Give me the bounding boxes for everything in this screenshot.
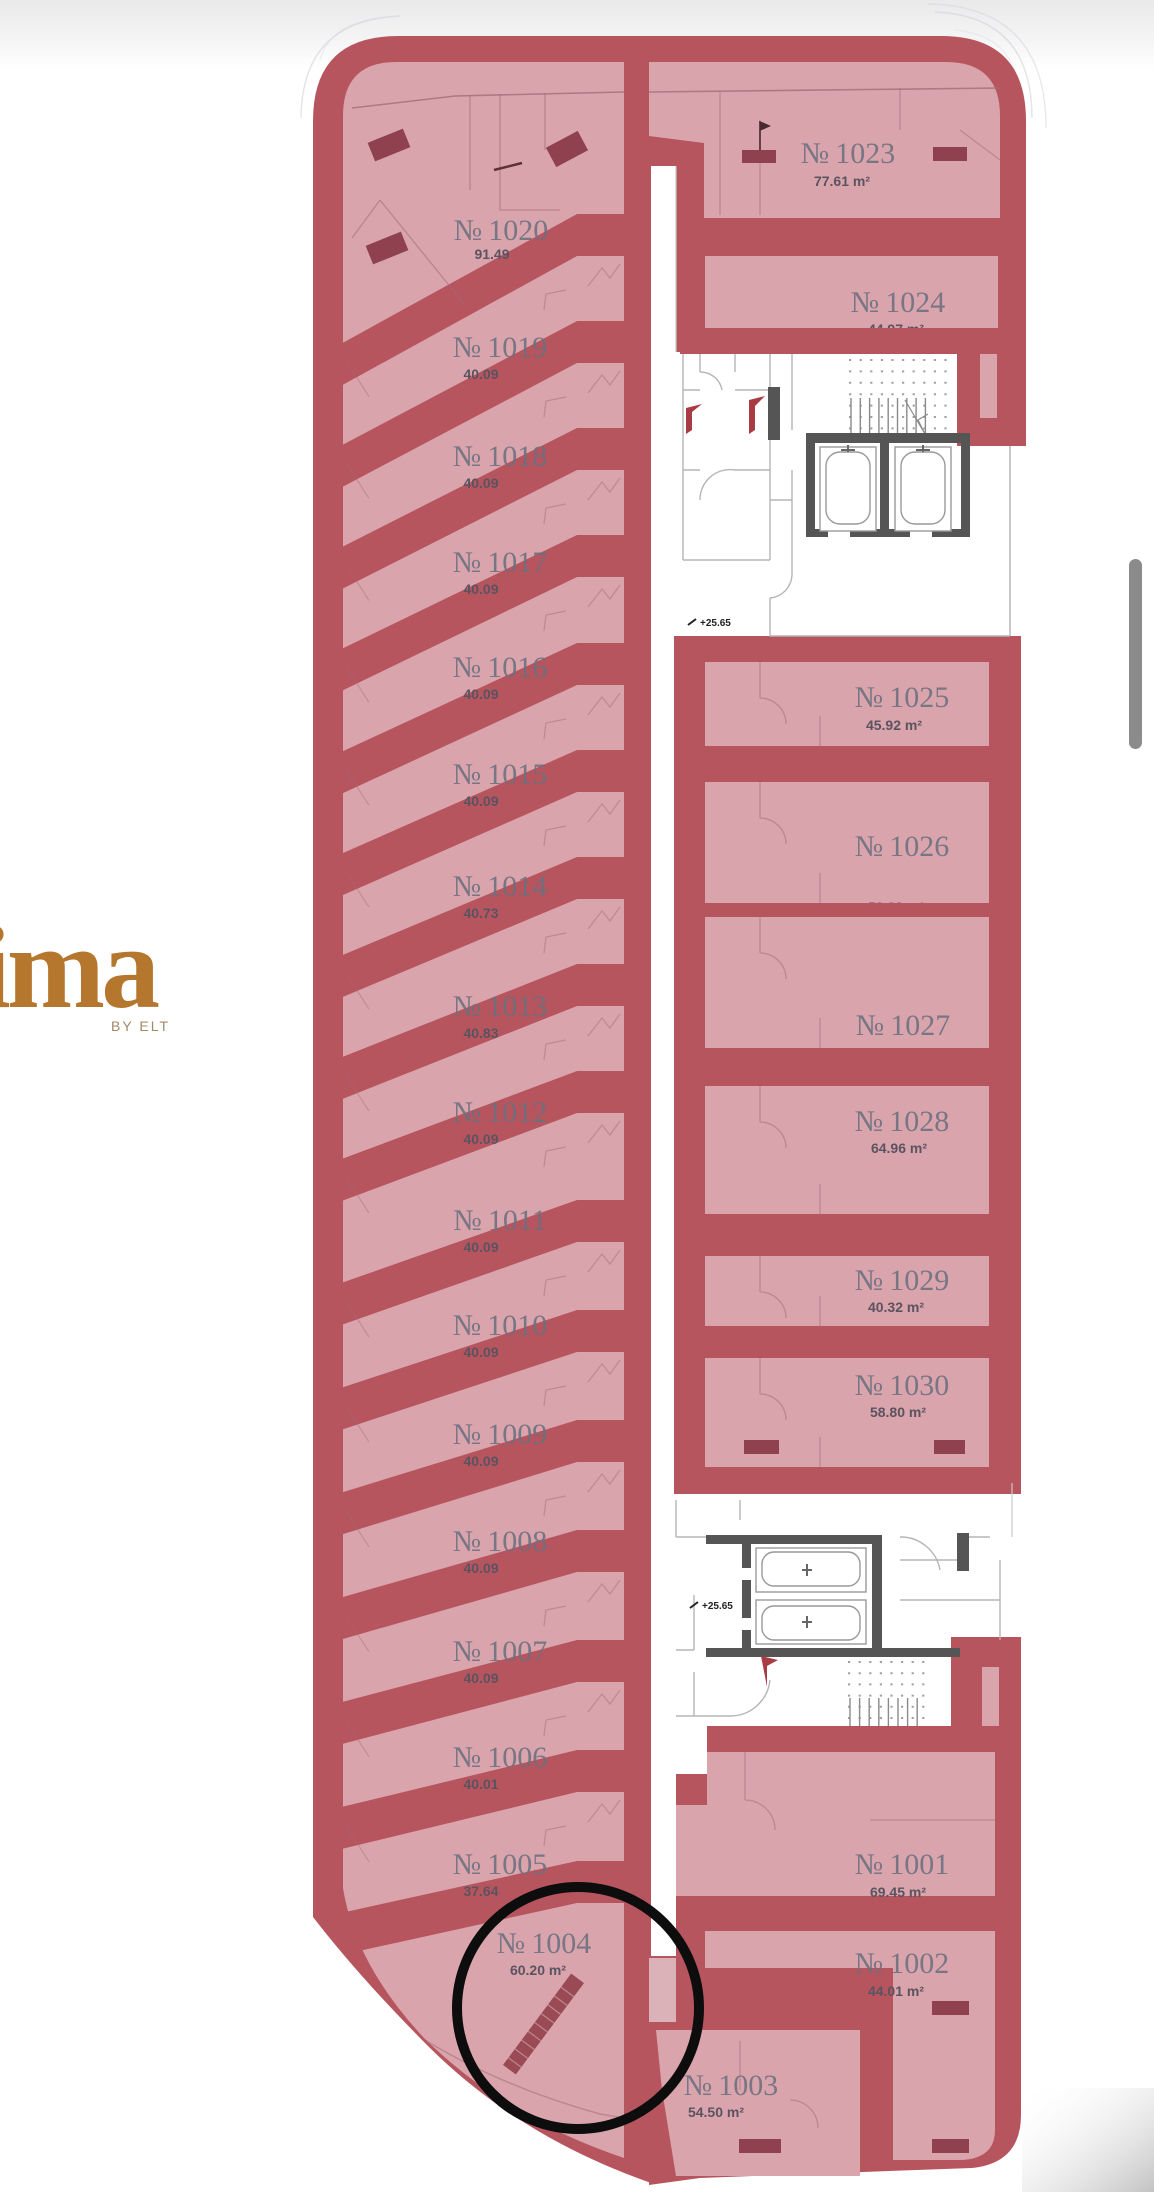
svg-text:№ 1020: № 1020 [454, 214, 549, 247]
svg-text:40.32 m²: 40.32 m² [868, 1299, 924, 1315]
svg-text:40.09: 40.09 [463, 1670, 498, 1686]
svg-text:BY ELT: BY ELT [111, 1018, 170, 1034]
svg-text:40.83: 40.83 [463, 1025, 498, 1041]
svg-text:40.09: 40.09 [463, 366, 498, 382]
svg-text:№ 1011: № 1011 [453, 1204, 547, 1237]
svg-text:№ 1028: № 1028 [855, 1105, 950, 1138]
svg-text:40.09: 40.09 [463, 686, 498, 702]
svg-text:№ 1001: № 1001 [855, 1848, 950, 1881]
svg-text:№ 1008: № 1008 [453, 1525, 548, 1558]
svg-text:№ 1005: № 1005 [453, 1848, 548, 1881]
svg-text:45.92 m²: 45.92 m² [866, 717, 922, 733]
svg-text:54.50 m²: 54.50 m² [688, 2104, 744, 2120]
svg-text:№ 1002: № 1002 [855, 1947, 950, 1980]
svg-text:60.20 m²: 60.20 m² [510, 1962, 566, 1978]
svg-text:№ 1019: № 1019 [453, 331, 548, 364]
svg-text:№ 1009: № 1009 [453, 1418, 548, 1451]
svg-text:№ 1014: № 1014 [453, 870, 548, 903]
svg-text:№ 1015: № 1015 [453, 758, 548, 791]
svg-text:№ 1018: № 1018 [453, 440, 548, 473]
svg-text:58.80 m²: 58.80 m² [870, 1404, 926, 1420]
svg-text:91.49: 91.49 [474, 246, 509, 262]
svg-text:№ 1013: № 1013 [453, 990, 548, 1023]
svg-text:40.09: 40.09 [463, 1131, 498, 1147]
svg-text:40.09: 40.09 [463, 1344, 498, 1360]
svg-text:+25.65: +25.65 [702, 1601, 733, 1612]
svg-text:44.01 m²: 44.01 m² [868, 1983, 924, 1999]
svg-text:№ 1010: № 1010 [453, 1309, 548, 1342]
svg-text:№ 1024: № 1024 [851, 286, 946, 319]
svg-text:40.09: 40.09 [463, 1560, 498, 1576]
svg-text:40.09: 40.09 [463, 1239, 498, 1255]
svg-text:№ 1027: № 1027 [856, 1009, 951, 1042]
svg-text:№ 1012: № 1012 [453, 1096, 548, 1129]
svg-text:40.09: 40.09 [463, 581, 498, 597]
svg-text:40.73: 40.73 [463, 905, 498, 921]
svg-text:№ 1004: № 1004 [497, 1927, 592, 1960]
svg-text:37.64: 37.64 [463, 1883, 498, 1899]
svg-text:40.01: 40.01 [463, 1776, 498, 1792]
svg-text:№ 1007: № 1007 [453, 1635, 548, 1668]
svg-text:40.09: 40.09 [463, 1453, 498, 1469]
svg-text:№ 1006: № 1006 [453, 1741, 548, 1774]
svg-text:69.45 m²: 69.45 m² [870, 1884, 926, 1900]
svg-text:№ 1017: № 1017 [453, 546, 548, 579]
svg-text:№ 1026: № 1026 [855, 830, 950, 863]
svg-text:40.09: 40.09 [463, 793, 498, 809]
svg-text:№ 1023: № 1023 [801, 137, 896, 170]
svg-text:64.96 m²: 64.96 m² [871, 1140, 927, 1156]
svg-text:№ 1003: № 1003 [684, 2069, 779, 2102]
svg-text:+25.65: +25.65 [700, 618, 731, 629]
svg-text:№ 1025: № 1025 [855, 681, 950, 714]
svg-text:ima: ima [0, 902, 159, 1033]
svg-text:№ 1030: № 1030 [855, 1369, 950, 1402]
svg-text:№ 1016: № 1016 [453, 651, 548, 684]
svg-text:40.09: 40.09 [463, 475, 498, 491]
svg-text:77.61 m²: 77.61 m² [814, 173, 870, 189]
svg-text:№ 1029: № 1029 [855, 1264, 950, 1297]
